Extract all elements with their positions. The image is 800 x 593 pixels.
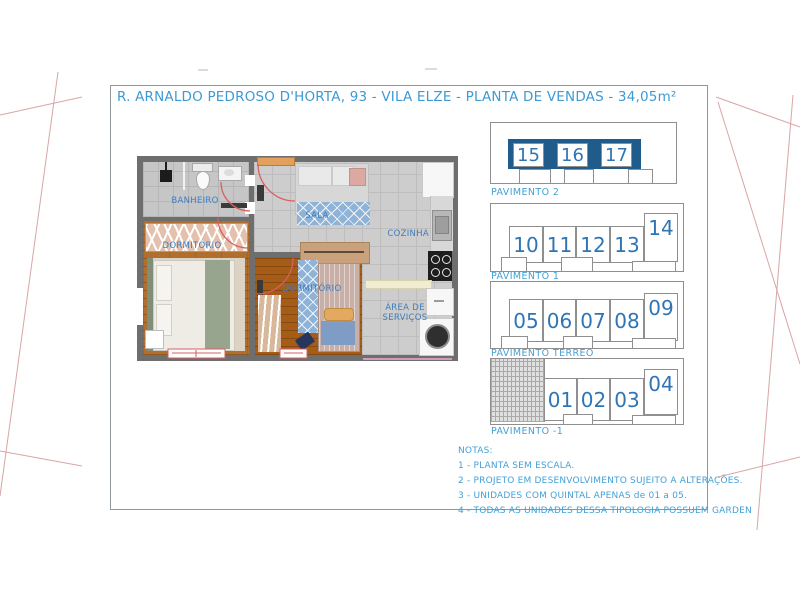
unit-07-number: 07 bbox=[580, 309, 605, 333]
pavimento-minus1-label: PAVIMENTO -1 bbox=[491, 426, 563, 437]
unit-04-number: 04 bbox=[648, 372, 673, 396]
unit-08: 08 bbox=[610, 299, 644, 342]
fold-line bbox=[718, 102, 800, 364]
plan-annotations bbox=[137, 156, 458, 361]
pavimento-2-panel: 15 16 17 bbox=[490, 122, 677, 184]
unit-01-number: 01 bbox=[548, 388, 573, 412]
page-title: R. ARNALDO PEDROSO D'HORTA, 93 - VILA EL… bbox=[117, 89, 697, 105]
note-item: 1 - PLANTA SEM ESCALA. bbox=[458, 459, 752, 474]
unit-16-number: 16 bbox=[561, 145, 584, 166]
unit-15: 15 bbox=[513, 143, 544, 167]
unit-16: 16 bbox=[557, 143, 588, 167]
panel-step bbox=[563, 414, 593, 424]
unit-06-number: 06 bbox=[547, 309, 572, 333]
panel-step bbox=[564, 169, 594, 183]
unit-13: 13 bbox=[610, 226, 644, 263]
panel-step bbox=[561, 257, 593, 271]
note-item: 4 - TODAS AS UNIDADES DESSA TIPOLOGIA PO… bbox=[458, 504, 752, 519]
unit-17: 17 bbox=[601, 143, 632, 167]
page: { "title": "R. ARNALDO PEDROSO D'HORTA, … bbox=[0, 0, 800, 593]
unit-09-number: 09 bbox=[648, 296, 673, 320]
room-label-area-servicos: ÁREA DE SERVIÇOS bbox=[367, 303, 443, 323]
fold-line bbox=[757, 95, 793, 530]
room-label-cozinha: COZINHA bbox=[385, 229, 429, 239]
room-label-area-servicos-line2: SERVIÇOS bbox=[367, 313, 443, 323]
unit-09: 09 bbox=[644, 293, 678, 341]
unit-14: 14 bbox=[644, 213, 678, 262]
unit-02-number: 02 bbox=[581, 388, 606, 412]
unit-11-number: 11 bbox=[547, 233, 572, 257]
note-item: 2 - PROJETO EM DESENVOLVIMENTO SUJEITO A… bbox=[458, 474, 752, 489]
panel-step bbox=[632, 261, 676, 271]
room-label-sala: SALA bbox=[287, 211, 347, 221]
notes-header: NOTAS: bbox=[458, 444, 752, 459]
pavimento-2-label: PAVIMENTO 2 bbox=[491, 187, 559, 198]
fold-line bbox=[0, 451, 82, 466]
unit-15-number: 15 bbox=[517, 145, 540, 166]
pavimento-terreo-panel: 05 06 07 08 09 bbox=[490, 281, 684, 349]
note-item: 3 - UNIDADES COM QUINTAL APENAS de 01 a … bbox=[458, 489, 752, 504]
pavimento-minus1-panel: 01 02 03 04 bbox=[490, 358, 684, 425]
floor-plan: BANHEIRO DORMITÓRIO SALA DORMITÓRIO COZI… bbox=[137, 156, 458, 361]
panel-step bbox=[501, 257, 527, 271]
door-swing-arc bbox=[258, 164, 295, 201]
unit-14-number: 14 bbox=[648, 216, 673, 240]
pavimento-1-panel: 10 11 12 13 14 bbox=[490, 203, 684, 272]
panel-step bbox=[632, 338, 676, 348]
unit-08-number: 08 bbox=[614, 309, 639, 333]
unit-17-number: 17 bbox=[605, 145, 628, 166]
panel-step bbox=[519, 169, 551, 183]
fold-line bbox=[0, 72, 58, 496]
smudge-mark bbox=[425, 68, 437, 70]
fold-line bbox=[0, 97, 82, 115]
unit-03-number: 03 bbox=[614, 388, 639, 412]
room-label-area-servicos-line1: ÁREA DE bbox=[367, 303, 443, 313]
panel-step bbox=[632, 415, 676, 424]
unit-12-number: 12 bbox=[580, 233, 605, 257]
room-label-dormitorio1: DORMITÓRIO bbox=[147, 241, 237, 251]
smudge-mark bbox=[198, 69, 208, 71]
garden-hatch-area bbox=[491, 359, 545, 422]
unit-13-number: 13 bbox=[614, 233, 639, 257]
panel-step bbox=[501, 336, 528, 348]
unit-04: 04 bbox=[644, 369, 678, 415]
unit-05-number: 05 bbox=[513, 309, 538, 333]
room-label-banheiro: BANHEIRO bbox=[155, 196, 235, 206]
panel-step bbox=[563, 336, 593, 348]
pavimento-2-highlight-band: 15 16 17 bbox=[508, 139, 641, 169]
notes-block: NOTAS: 1 - PLANTA SEM ESCALA. 2 - PROJET… bbox=[458, 444, 752, 519]
panel-step bbox=[628, 169, 653, 183]
unit-10-number: 10 bbox=[513, 233, 538, 257]
room-label-dormitorio2: DORMITÓRIO bbox=[267, 284, 357, 294]
fold-line bbox=[716, 97, 800, 127]
